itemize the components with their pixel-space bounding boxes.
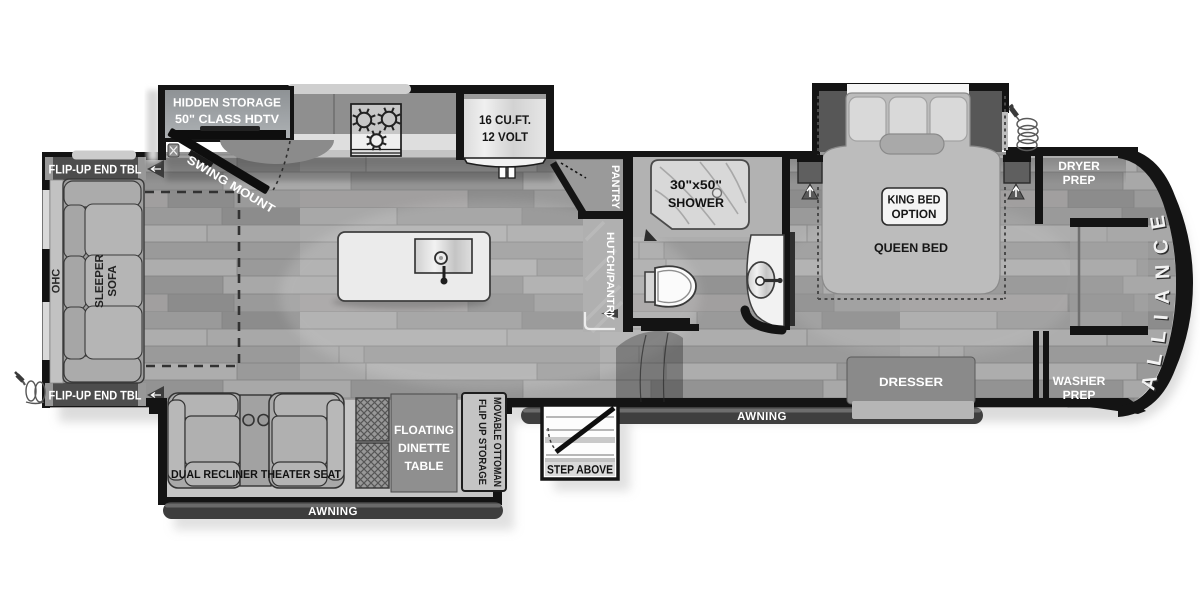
svg-text:AWNING: AWNING <box>308 506 358 518</box>
svg-text:DRYER: DRYER <box>1058 159 1100 173</box>
svg-text:MOVABLE OTTOMAN: MOVABLE OTTOMAN <box>491 397 503 487</box>
svg-text:SHOWER: SHOWER <box>668 196 724 210</box>
svg-text:HIDDEN STORAGE: HIDDEN STORAGE <box>173 96 281 110</box>
svg-text:AWNING: AWNING <box>737 411 787 423</box>
svg-text:DUAL RECLINER THEATER SEAT: DUAL RECLINER THEATER SEAT <box>171 469 341 481</box>
svg-text:PREP: PREP <box>1063 388 1096 402</box>
svg-text:STEP ABOVE: STEP ABOVE <box>547 463 613 477</box>
svg-text:50" CLASS HDTV: 50" CLASS HDTV <box>175 112 279 126</box>
svg-text:HUTCH/PANTRY: HUTCH/PANTRY <box>604 232 616 320</box>
svg-text:FLIP UP STORAGE: FLIP UP STORAGE <box>476 399 488 485</box>
svg-text:FLIP-UP END TBL: FLIP-UP END TBL <box>49 163 142 177</box>
svg-text:PREP: PREP <box>1063 173 1096 187</box>
svg-text:TABLE: TABLE <box>404 459 443 473</box>
svg-text:30"x50": 30"x50" <box>670 178 722 192</box>
svg-text:KING BED: KING BED <box>888 193 941 207</box>
svg-text:OPTION: OPTION <box>892 207 937 221</box>
svg-text:DRESSER: DRESSER <box>879 375 943 389</box>
svg-text:SOFA: SOFA <box>107 265 119 296</box>
svg-text:FLOATING: FLOATING <box>394 423 454 437</box>
svg-text:PANTRY: PANTRY <box>609 165 621 210</box>
svg-text:12 VOLT: 12 VOLT <box>482 130 528 144</box>
svg-text:SLEEPER: SLEEPER <box>94 253 106 307</box>
svg-text:16 CU.FT.: 16 CU.FT. <box>479 113 531 127</box>
svg-text:WASHER: WASHER <box>1053 374 1106 388</box>
svg-text:DINETTE: DINETTE <box>398 441 450 455</box>
svg-text:OHC: OHC <box>51 269 63 294</box>
svg-text:QUEEN BED: QUEEN BED <box>874 241 948 255</box>
svg-text:FLIP-UP END TBL: FLIP-UP END TBL <box>49 389 142 403</box>
